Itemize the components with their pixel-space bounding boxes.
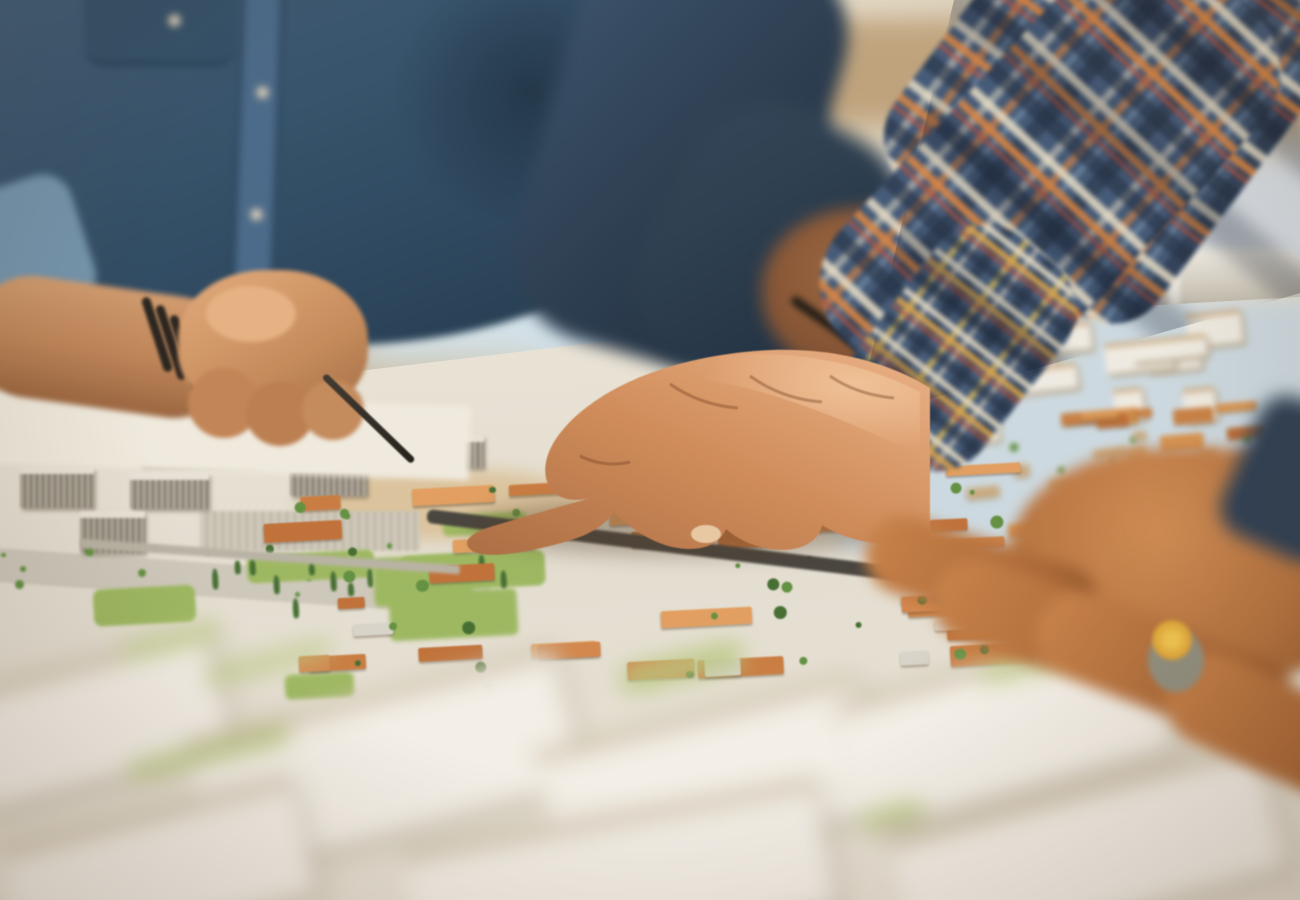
fingernail	[691, 525, 721, 543]
orange-roof-block	[264, 520, 342, 543]
pointing-hand	[420, 336, 930, 576]
left-thumb-knuckle	[206, 286, 296, 342]
tree	[767, 579, 779, 591]
cypress-tree	[234, 560, 241, 574]
pocket-button	[168, 14, 181, 27]
tree	[781, 581, 793, 593]
tree	[1130, 438, 1135, 443]
orange-roof-block	[300, 495, 341, 512]
tree	[348, 547, 358, 557]
chest-pocket	[84, 0, 236, 66]
row-house-roof	[1132, 407, 1153, 418]
wedding-ring-glint	[1152, 620, 1192, 660]
row-house-roof	[1172, 406, 1214, 424]
tree	[969, 489, 975, 495]
blurred-green-strip	[620, 640, 744, 693]
sketch-building	[20, 467, 94, 508]
tree	[294, 502, 306, 514]
cypress-tree	[212, 569, 219, 590]
sketch-building	[130, 473, 209, 509]
tree	[343, 570, 356, 583]
shirt-button	[256, 86, 269, 99]
blurred-green-strip	[205, 640, 332, 683]
tree	[950, 482, 962, 494]
tree	[15, 580, 24, 589]
row-house-roof	[1215, 401, 1257, 413]
orange-roof-block	[338, 597, 365, 610]
tree	[1009, 442, 1019, 452]
photo-two-planners-over-city-model	[0, 0, 1300, 900]
tree	[20, 566, 26, 572]
shirt-button	[250, 208, 263, 221]
tree	[344, 513, 351, 520]
